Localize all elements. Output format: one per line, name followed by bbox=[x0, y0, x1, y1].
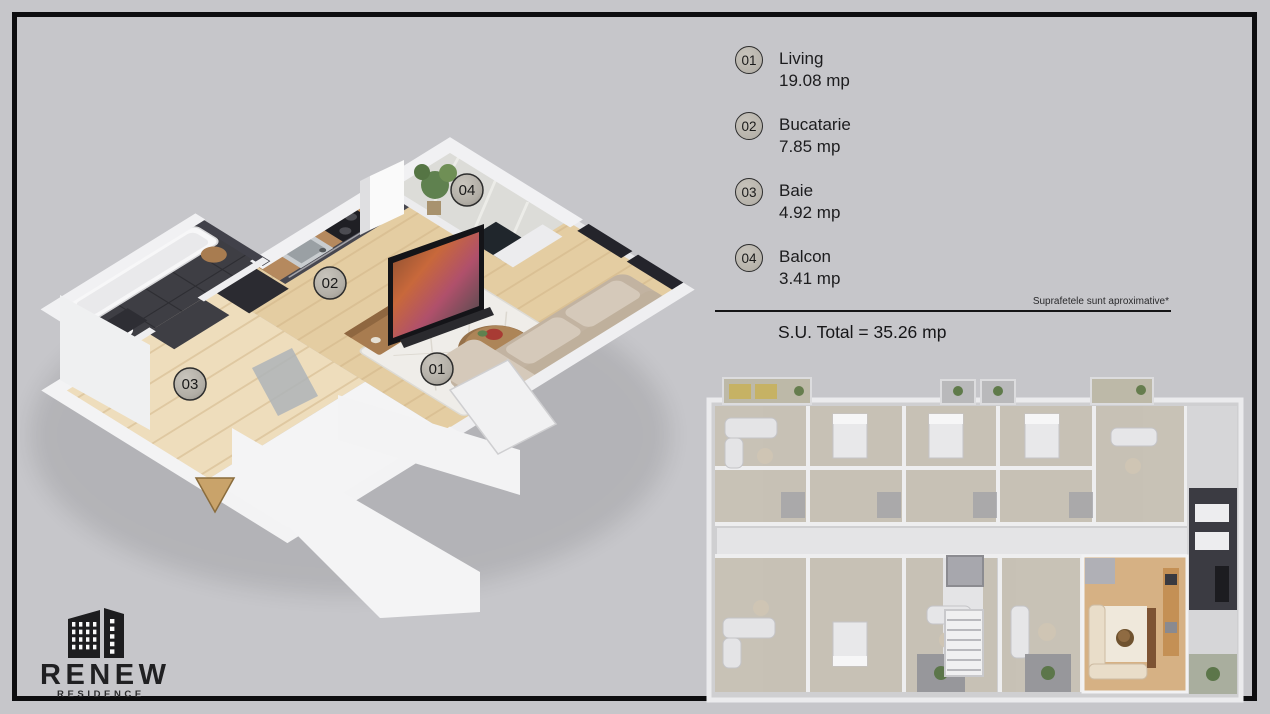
room-name: Living bbox=[779, 48, 850, 70]
room-area: 7.85 mp bbox=[779, 136, 851, 158]
lobby-elevators bbox=[1187, 406, 1237, 654]
svg-text:02: 02 bbox=[322, 275, 339, 292]
plan-badge-03: 03 bbox=[174, 368, 206, 400]
legend-row-living: 01 Living 19.08 mp bbox=[735, 48, 1171, 92]
plan-badge-02: 02 bbox=[314, 267, 346, 299]
room-name: Balcon bbox=[779, 246, 840, 268]
room-name: Bucatarie bbox=[779, 114, 851, 136]
legend-badge-01: 01 bbox=[735, 46, 763, 74]
legend-row-baie: 03 Baie 4.92 mp bbox=[735, 180, 1171, 224]
legend-row-balcon: 04 Balcon 3.41 mp bbox=[735, 246, 1171, 290]
apartment-3d-plan: 01 02 03 04 bbox=[20, 115, 720, 635]
svg-text:01: 01 bbox=[429, 361, 446, 378]
legend-badge-02: 02 bbox=[735, 112, 763, 140]
stairwell bbox=[945, 556, 983, 676]
plan-badge-01: 01 bbox=[421, 353, 453, 385]
plan-badge-04: 04 bbox=[451, 174, 483, 206]
total-area: S.U. Total = 35.26 mp bbox=[778, 322, 1171, 343]
legend-divider bbox=[715, 310, 1171, 312]
approx-note: Suprafetele sunt aproximative* bbox=[715, 296, 1169, 307]
room-legend: 01 Living 19.08 mp 02 Bucatarie 7.85 mp … bbox=[715, 40, 1171, 343]
corridor bbox=[717, 528, 1217, 554]
room-area: 3.41 mp bbox=[779, 268, 840, 290]
room-area: 4.92 mp bbox=[779, 202, 840, 224]
legend-badge-04: 04 bbox=[735, 244, 763, 272]
svg-text:04: 04 bbox=[459, 182, 476, 199]
buildings-icon bbox=[68, 608, 124, 658]
legend-row-bucatarie: 02 Bucatarie 7.85 mp bbox=[735, 114, 1171, 158]
building-body bbox=[709, 378, 1241, 700]
building-floor-plan bbox=[695, 370, 1253, 710]
svg-text:03: 03 bbox=[182, 376, 199, 393]
room-area: 19.08 mp bbox=[779, 70, 850, 92]
brochure-page: 01 02 03 04 01 Living 19.08 mp 02 Bucata… bbox=[0, 0, 1270, 714]
logo-name: RENEW bbox=[40, 659, 170, 691]
legend-badge-03: 03 bbox=[735, 178, 763, 206]
room-name: Baie bbox=[779, 180, 840, 202]
logo-subtitle: RESIDENCE bbox=[57, 689, 145, 700]
renew-logo: RENEW RESIDENCE bbox=[30, 595, 230, 700]
